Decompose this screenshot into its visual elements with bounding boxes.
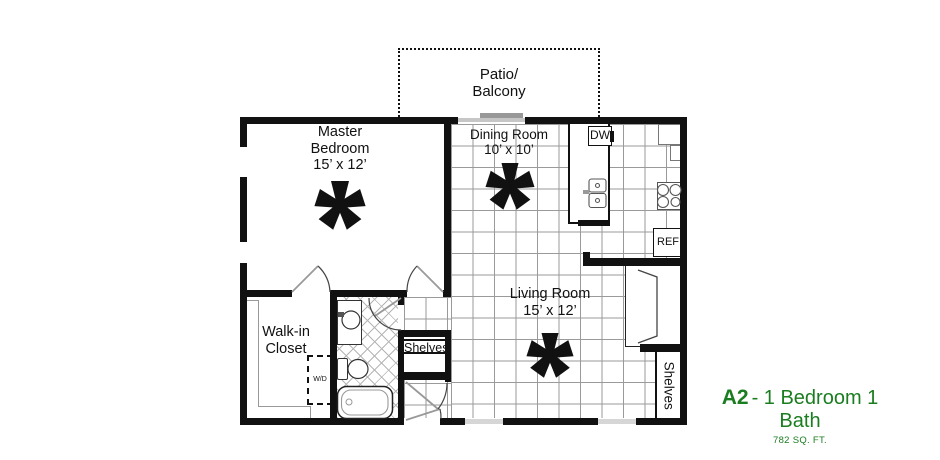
plan-code: A2 bbox=[722, 386, 749, 409]
wall bbox=[583, 258, 687, 266]
shelves-living-label: Shelves bbox=[661, 354, 676, 418]
wall bbox=[398, 297, 404, 305]
patio-label: Patio/ Balcony bbox=[398, 66, 600, 100]
wall bbox=[443, 290, 451, 297]
wall bbox=[440, 418, 465, 425]
living-room-label: Living Room 15’ x 12’ bbox=[490, 286, 610, 319]
dining-room-label: Dining Room 10’ x 10’ bbox=[450, 127, 568, 158]
sliding-door-track bbox=[458, 118, 525, 122]
wall bbox=[398, 330, 451, 337]
master-bedroom-label: Master Bedroom 15’ x 12’ bbox=[270, 124, 410, 174]
shelves-hall-label: Shelves bbox=[402, 339, 448, 354]
wall bbox=[636, 418, 687, 425]
wall bbox=[680, 117, 687, 425]
walk-in-closet-label: Walk-in Closet bbox=[245, 324, 327, 357]
closet-shelf-line bbox=[310, 406, 311, 418]
wall bbox=[578, 220, 610, 226]
toilet-tank bbox=[337, 358, 348, 380]
plan-title: A2- 1 Bedroom 1 Bath bbox=[703, 386, 897, 433]
wall bbox=[330, 290, 407, 297]
wall bbox=[240, 177, 247, 242]
wall bbox=[640, 344, 687, 352]
wall bbox=[398, 372, 451, 380]
sliding-door-panel bbox=[480, 113, 523, 118]
wall bbox=[503, 418, 598, 425]
closet-shelf-line bbox=[258, 406, 311, 407]
plan-area: 782 SQ. FT. bbox=[703, 435, 897, 446]
floor-plan-canvas: Patio/ Balcony DW REF Shelves Shelves W/… bbox=[0, 0, 940, 460]
wall bbox=[240, 117, 458, 124]
closet-shelf-line bbox=[247, 300, 259, 301]
bathroom-vanity bbox=[337, 300, 362, 345]
wall bbox=[583, 252, 590, 258]
wall bbox=[610, 131, 614, 142]
wall bbox=[240, 117, 247, 147]
wall bbox=[240, 418, 404, 425]
window bbox=[598, 419, 636, 424]
wall bbox=[330, 297, 337, 418]
wall bbox=[247, 290, 292, 297]
wall bbox=[655, 352, 657, 418]
plan-name: - 1 Bedroom 1 Bath bbox=[752, 387, 879, 432]
window bbox=[465, 419, 503, 424]
fireplace bbox=[625, 265, 680, 347]
wall bbox=[525, 117, 687, 124]
refrigerator: REF bbox=[653, 228, 683, 257]
dishwasher: DW bbox=[588, 126, 612, 146]
plan-title-block: A2- 1 Bedroom 1 Bath 782 SQ. FT. bbox=[703, 386, 897, 446]
ceiling-fan-icon bbox=[314, 181, 365, 230]
